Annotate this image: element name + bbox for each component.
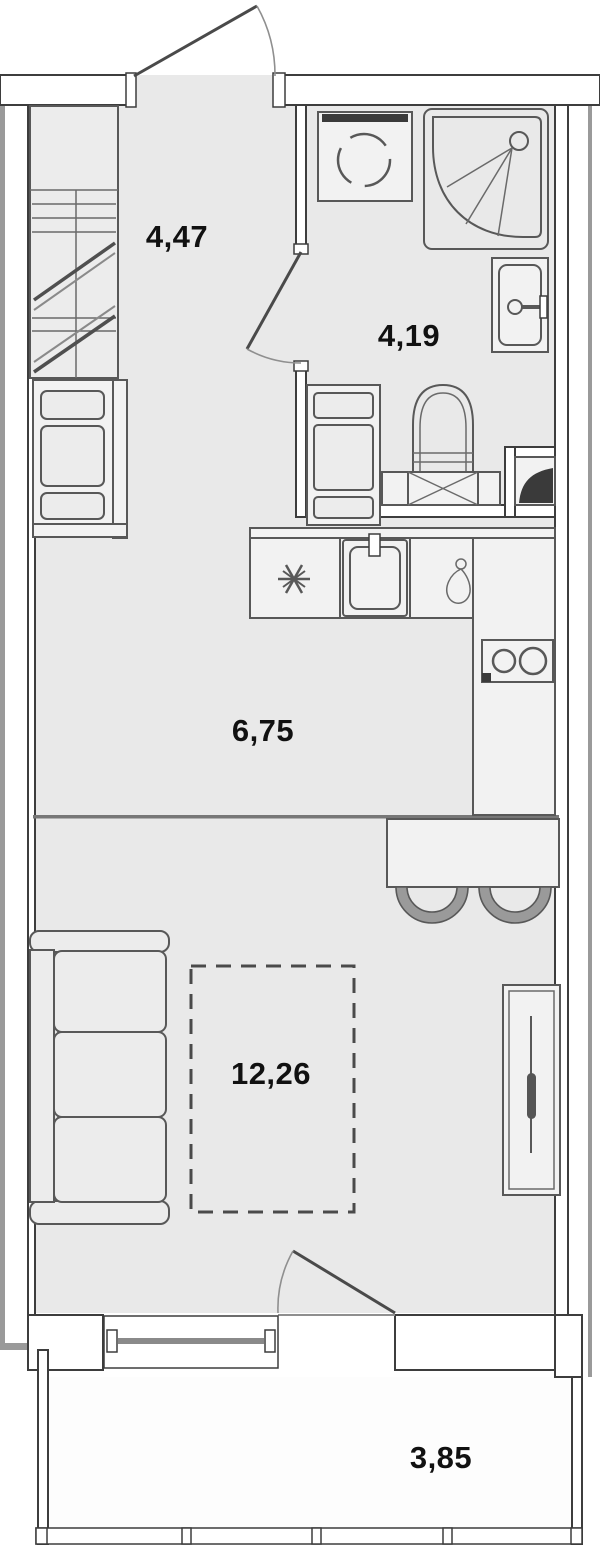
dresser-base [33,524,127,537]
balcony-glazing-mullion [36,1528,47,1544]
vent-wall-side [505,447,515,517]
floor-plan-drawing: 4,47 4,19 6,75 12,26 3,85 [0,0,600,1552]
entry-door-jamb-left [126,73,136,107]
sofa-armrest-top [30,931,169,952]
sofa-icon [30,931,169,1224]
entry-door-swing-arc [257,6,275,76]
toilet-cistern-left [382,472,408,505]
wardrobe-icon [30,106,118,378]
balcony-glazing-mullion [182,1528,191,1544]
washing-machine-body [318,112,412,201]
sofa-cushion [54,1032,166,1117]
bathroom-cabinet-shelf [314,393,373,418]
bathroom-cabinet-door [314,425,373,490]
floor-plan: 4,47 4,19 6,75 12,26 3,85 [0,0,600,1552]
stove-corner-mark [482,673,491,682]
wall-bathroom-upper [296,105,306,252]
building-edge-left [0,100,5,1343]
building-edge-right [588,95,592,1377]
balcony-glazing-band [36,1528,582,1544]
dresser-drawer-top [41,391,104,419]
balcony-wall-right [572,1377,582,1544]
bar-counter-top [387,819,559,887]
balcony-glazing-mullion [443,1528,452,1544]
wardrobe-body [30,106,118,378]
wall-top-left [0,75,134,105]
washing-machine-panel [322,114,408,122]
dresser-drawer-bottom [41,493,104,519]
sofa-back [30,950,54,1202]
dresser-door [41,426,104,486]
window-icon [104,1316,278,1368]
sofa-armrest-bottom [30,1201,169,1224]
sofa-cushion [54,1117,166,1202]
tall-cabinet-handle [527,1073,536,1119]
balcony-glazing-icon [36,1528,582,1544]
entry-door-leaf [134,6,257,76]
kitchen-area-label: 6,75 [232,713,294,748]
washing-machine-icon [318,112,412,201]
toilet-cistern-right [478,472,500,505]
window-frame-end [265,1330,275,1352]
balcony-floor [48,1377,572,1528]
window-frame-end [107,1330,117,1352]
dresser-side-panel [113,380,127,538]
window-glazing [118,1338,264,1344]
stove-icon [482,640,553,682]
bar-counter-icon [387,819,559,887]
balcony-wall-left [38,1350,48,1544]
living-area-label: 12,26 [231,1056,311,1091]
washbasin-tap-handle [540,296,547,318]
tall-cabinet-icon [503,985,560,1195]
kitchen-sink-tap [369,534,380,556]
bathroom-cabinet-shelf [314,497,373,518]
hallway-area-label: 4,47 [146,219,208,254]
washbasin-icon [492,258,548,352]
entry-door-jamb-right [273,73,285,107]
entry-opening-floor [134,75,275,105]
dresser-icon [33,380,127,538]
wall-bottom-right [395,1315,555,1370]
wall-bottom-right-ext [555,1315,582,1377]
vent-shaft-icon [515,457,555,505]
balcony-area-label: 3,85 [410,1440,472,1475]
balcony-glazing-mullion [312,1528,321,1544]
wall-top-right [275,75,600,105]
balcony-glazing-mullion [571,1528,582,1544]
kitchen-counter-back [250,528,555,538]
bathroom-door-opening-floor [296,252,306,365]
wall-bathroom-lower [296,365,306,517]
bathroom-cabinet-icon [307,385,380,525]
sofa-cushion [54,951,166,1032]
bathroom-area-label: 4,19 [378,318,440,353]
